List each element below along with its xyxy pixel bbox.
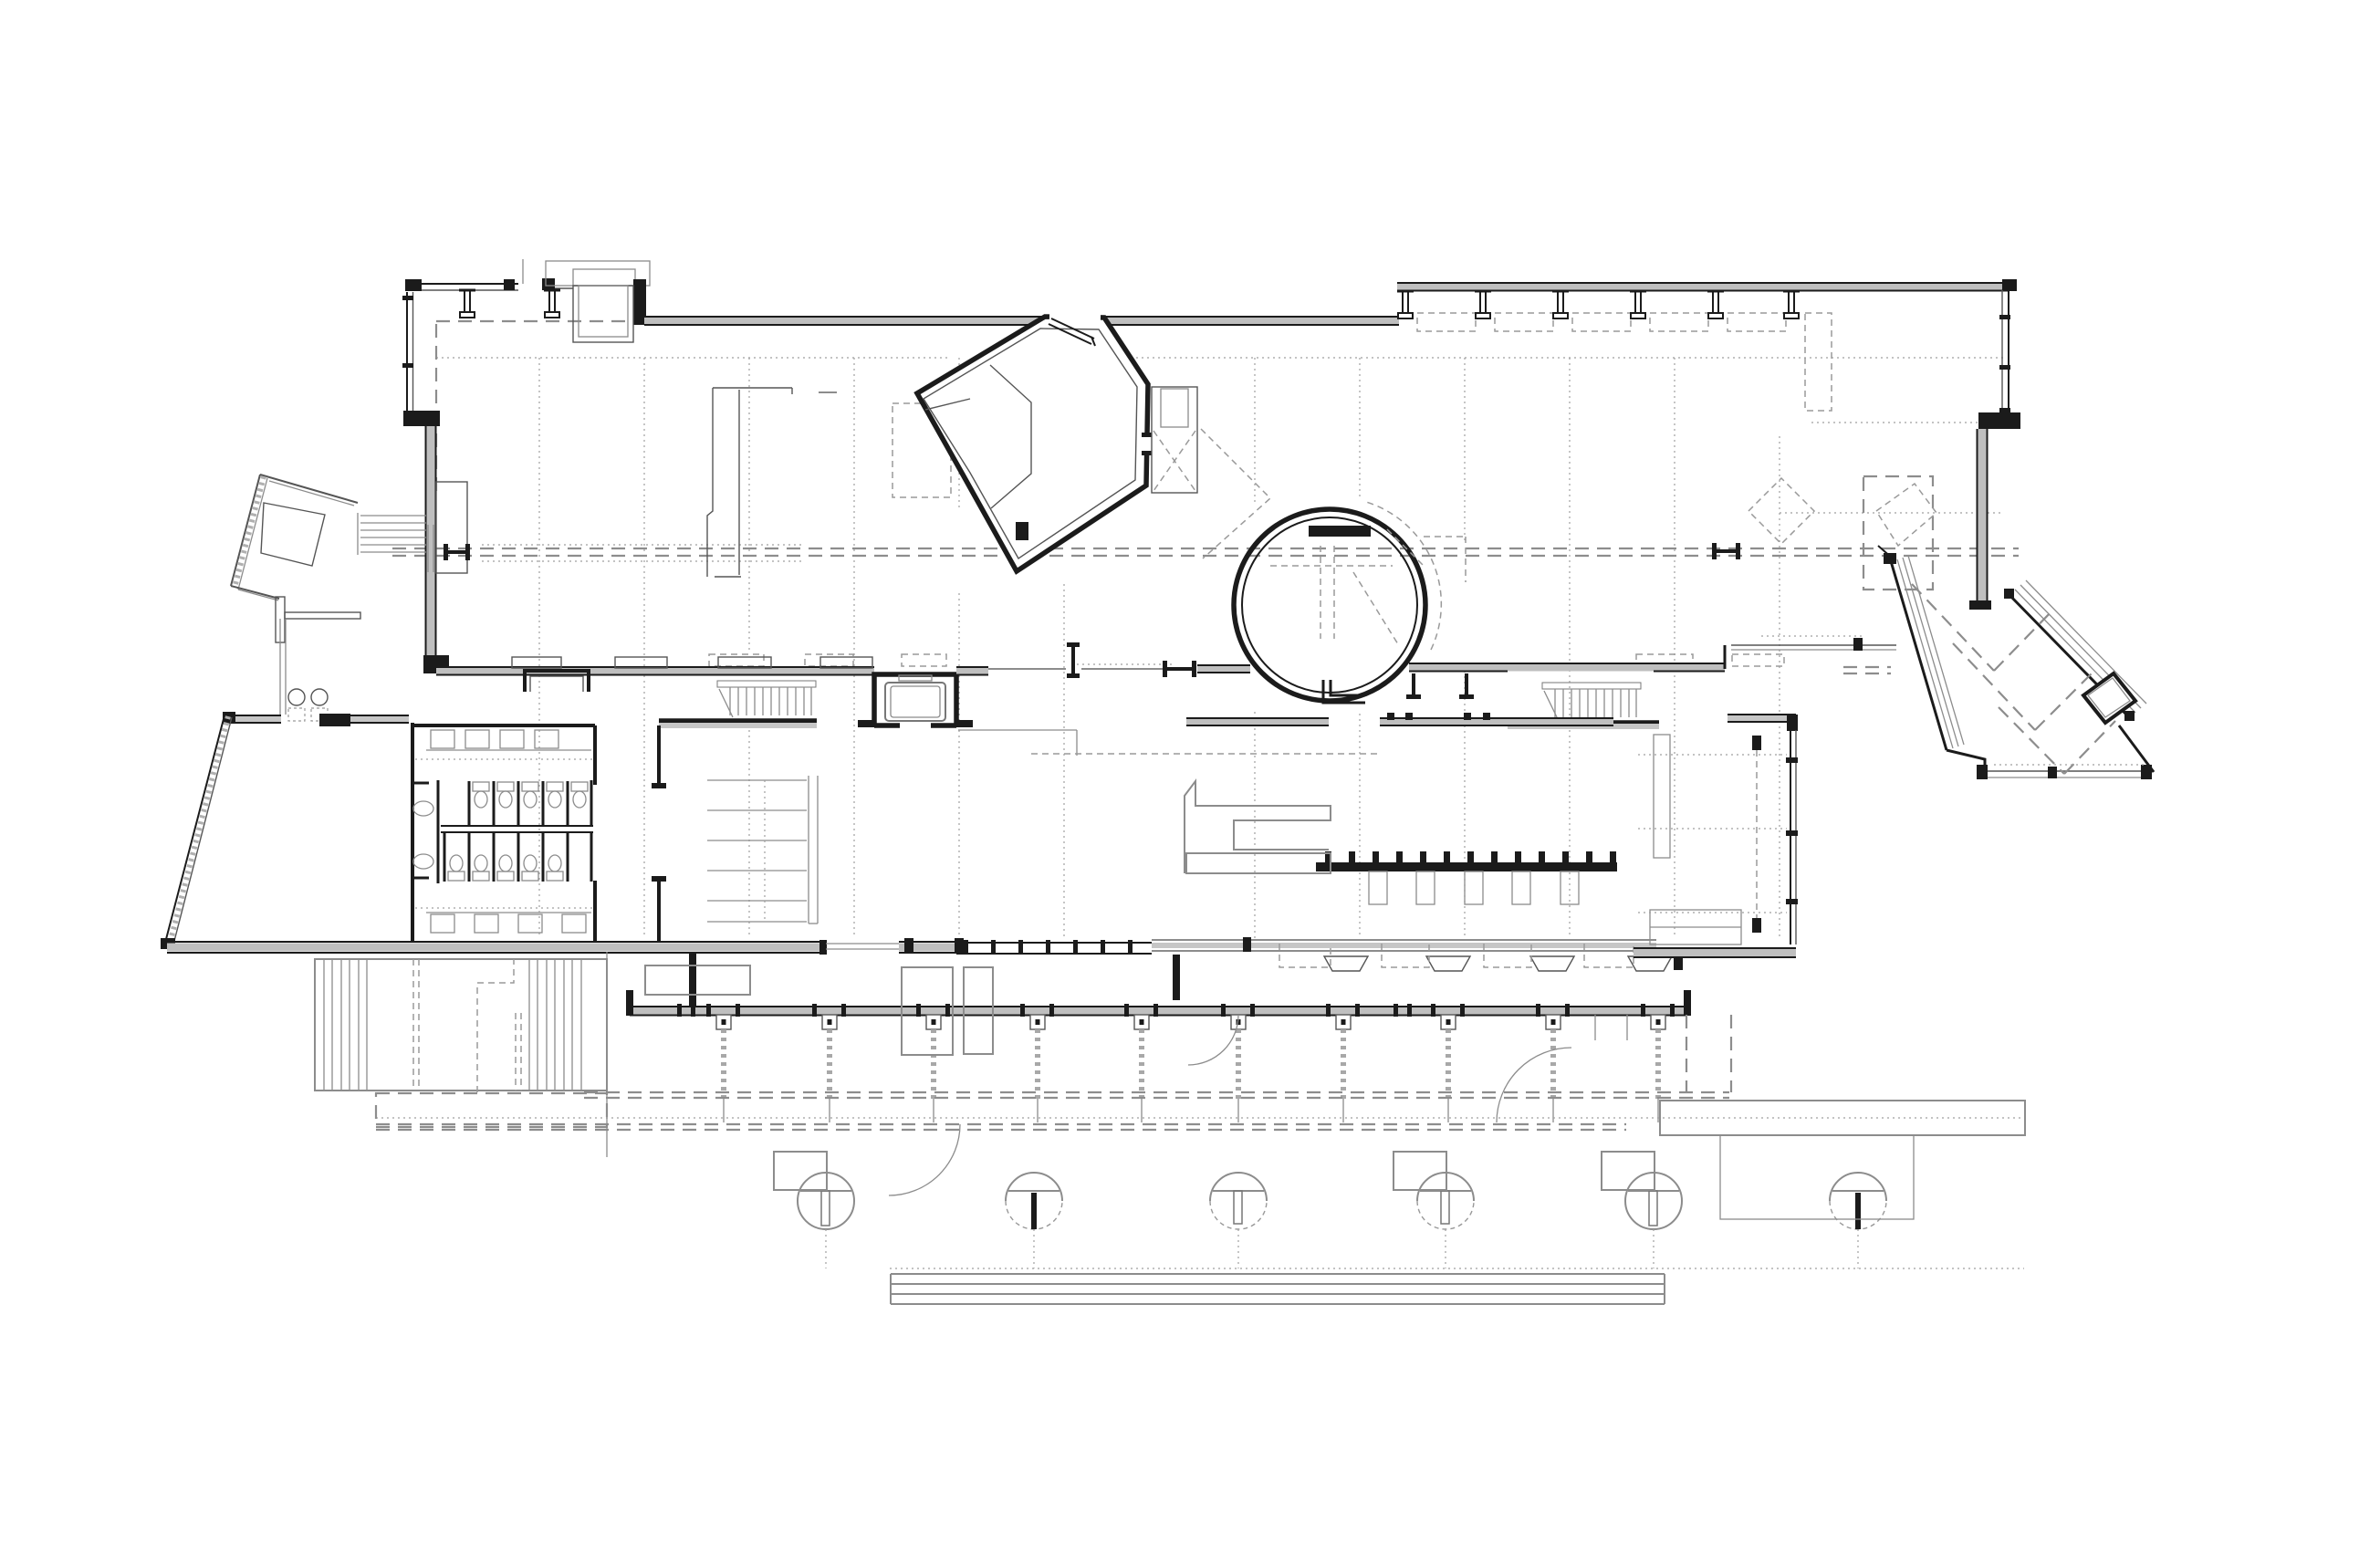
column-capital [1426,956,1470,971]
tie-column [822,1015,837,1122]
round-column [1602,1152,1682,1229]
t-column-icon [1459,673,1474,699]
tie-column [1546,1015,1561,1122]
window-mullion-icon [1397,291,1414,318]
reception-desk [1185,781,1331,873]
interior-furniture [1185,781,1617,904]
west-deck [315,952,607,1157]
tie-column [1651,1015,1665,1122]
wide-south-stair [707,776,818,924]
circular-room [1234,500,1466,706]
tie-column [926,1015,941,1122]
steel-column-icon [444,544,470,560]
circle-top-wall [1309,526,1371,537]
window-mullion-icon [1552,291,1569,318]
round-column [1830,1173,1886,1229]
column-grid [436,358,2003,938]
south-arcade [626,953,1731,1195]
entry-steps [891,1274,1665,1304]
planter-circle [311,689,328,705]
steel-column-icon [1163,661,1196,677]
window-mullion-icon [1707,291,1724,318]
window-mullion-icon [1475,291,1491,318]
floor-joint-dots [584,404,1741,809]
drawing-sheet [0,0,2380,1555]
round-column [1210,1173,1267,1229]
door-block [1016,522,1028,540]
t-column-icon [1406,673,1421,699]
lower-terrace [1720,1135,1914,1219]
stair-run [1542,683,1641,719]
planter-circle [288,689,305,705]
tie-column [1336,1015,1351,1122]
se-corner-room [1634,715,1798,970]
tie-column [1441,1015,1456,1122]
south-wall [167,937,1672,971]
round-column [774,1152,854,1229]
site-works [315,952,2025,1304]
steel-column-icon [1712,543,1740,559]
restrooms [412,723,595,943]
roof-axis-dashes [392,313,2019,666]
door-swing-arc [889,1124,960,1195]
window-mullion-icon [544,290,560,318]
door-swing-arc [1497,1048,1571,1122]
tie-column [1134,1015,1149,1122]
window-mullion-icon [1783,291,1800,318]
stair-run [717,681,816,717]
window-mullion-icon [1630,291,1646,318]
round-column [1394,1152,1474,1229]
southwest-hall [161,712,595,949]
tie-column [716,1015,731,1122]
floor-plan-drawing [0,0,2380,1555]
tie-column [1030,1015,1045,1122]
steel-column-icon [1067,642,1080,678]
entry-stair [358,513,433,572]
elevator [858,674,973,727]
round-column [1006,1173,1062,1229]
column-capital [1530,956,1574,971]
west-entry-pavilion [231,475,433,721]
column-capital [1628,956,1672,971]
display-counter [1316,862,1617,871]
tilted-kiosk [261,503,325,566]
rotated-gallery-pavilion [917,316,1270,571]
tie-column [1231,1015,1246,1122]
north-gallery-walls [402,259,2020,673]
east-angled-wing [1725,476,2154,779]
window-mullion-icon [459,290,475,318]
